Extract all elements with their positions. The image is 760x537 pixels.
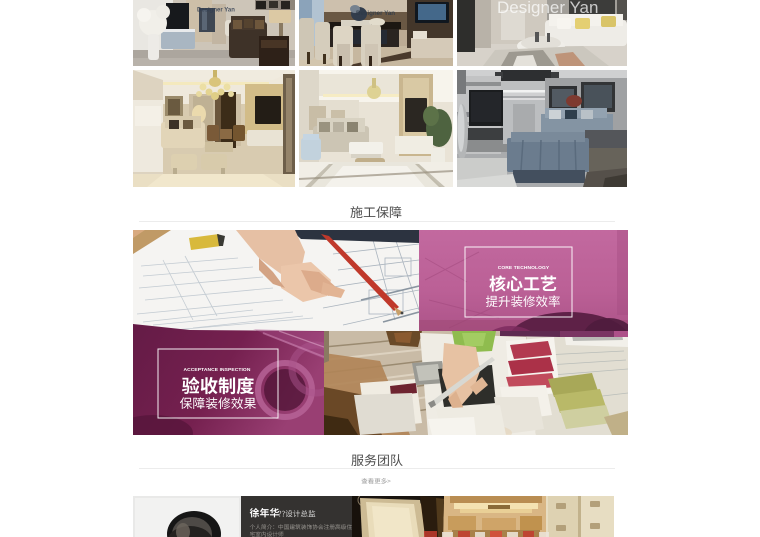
svg-text:Designer Yan: Designer Yan bbox=[497, 0, 598, 17]
svg-text:Designer Yan: Designer Yan bbox=[197, 8, 235, 14]
svg-text:Designer Yan: Designer Yan bbox=[356, 10, 395, 17]
